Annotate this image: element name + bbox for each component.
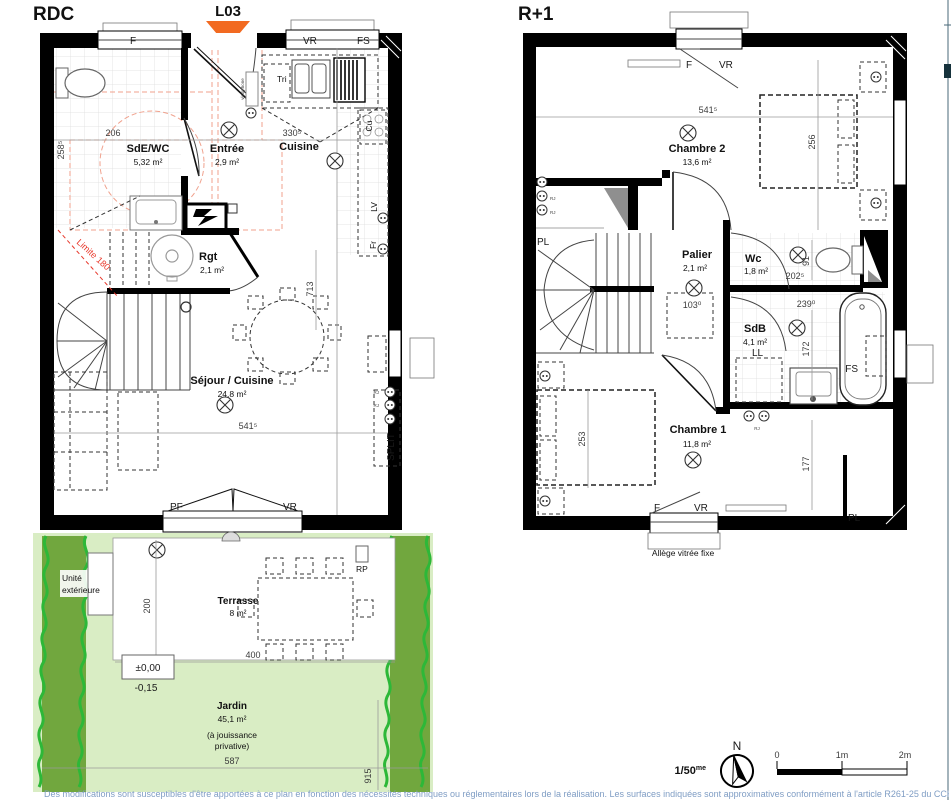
- dim-177: 177: [801, 456, 811, 471]
- closet-door: [604, 188, 628, 228]
- cuisine-name: Cuisine: [279, 141, 319, 153]
- r1-window-sdb: [894, 330, 906, 378]
- closet-wall: [628, 186, 638, 230]
- ch2-bed: [760, 62, 886, 220]
- wc-partition: [723, 220, 730, 288]
- pl-left-label: PL: [537, 237, 550, 248]
- pillow: [838, 100, 854, 138]
- floor-plan-sheet: RDC L03 F VR FS: [0, 0, 951, 800]
- outlet-icon: [537, 191, 547, 201]
- viewport-edge: [944, 0, 951, 800]
- allege-box: [648, 533, 720, 549]
- rdc-partition: [181, 48, 188, 112]
- rdc-pf-label: PF: [170, 502, 183, 513]
- ch1-area: 11,8 m²: [683, 439, 711, 449]
- plan-canvas: RDC L03 F VR FS: [0, 0, 951, 800]
- rgt-area: 2,1 m²: [200, 265, 224, 275]
- wc-name: Wc: [745, 253, 762, 265]
- scale-2m: 2m: [899, 750, 912, 760]
- window-sill: [410, 338, 434, 378]
- outlet-icon: [385, 414, 395, 424]
- toilet-bowl: [65, 69, 105, 97]
- dim-206: 206: [105, 128, 120, 138]
- scale-bar-black: [777, 769, 842, 775]
- switch-box: [228, 204, 237, 213]
- level-minus15: -0,15: [135, 683, 158, 694]
- r1-vr-label: VR: [719, 60, 733, 71]
- dim-915: 915: [363, 768, 373, 783]
- exterior-unit: [88, 553, 113, 615]
- jardin-note2: privative): [215, 741, 250, 751]
- palier-area: 2,1 m²: [683, 263, 707, 273]
- sde-name: SdE/WC: [127, 143, 170, 155]
- terrasse-area: 8 m²: [230, 608, 247, 618]
- scale-0: 0: [774, 750, 779, 760]
- coffee-table: [118, 392, 158, 470]
- bathtub: [840, 293, 886, 405]
- outlet-icon: [246, 108, 256, 118]
- legend: 1/50me N 0 1m 2m: [674, 739, 911, 790]
- dim-330: 330⁵: [283, 128, 302, 138]
- rdc-window-fs-label: FS: [357, 36, 370, 47]
- washbasin: [130, 196, 182, 230]
- shelf: [726, 505, 786, 511]
- sdb-faucet: [810, 396, 816, 402]
- outlet-icon: [744, 411, 754, 421]
- rdc-entry-opening: [191, 33, 257, 48]
- scale-1m: 1m: [836, 750, 849, 760]
- dim-400: 400: [245, 650, 260, 660]
- r1-window-bottom: [650, 513, 718, 533]
- unite-ext-label2: extérieure: [62, 585, 100, 595]
- terrasse-name: Terrasse: [218, 596, 259, 607]
- dim-541: 541⁵: [239, 421, 258, 431]
- sdb-name: SdB: [744, 323, 766, 335]
- rdc-title: RDC: [33, 4, 74, 25]
- dim-202: 202⁵: [786, 271, 805, 281]
- rj-label: RJ: [374, 390, 380, 395]
- chair: [313, 358, 328, 371]
- rj-label: RJ: [374, 403, 380, 408]
- lv-label: LV: [369, 202, 379, 212]
- dim-103: 103⁰: [683, 300, 702, 310]
- ch1-name: Chambre 1: [670, 424, 727, 436]
- rdc-toilet: [56, 68, 105, 98]
- outlet-icon: [378, 213, 388, 223]
- outlet-icon: [537, 205, 547, 215]
- ll-label: LL: [752, 348, 764, 359]
- wc-area: 1,8 m²: [744, 266, 768, 276]
- pl-right-label: PL: [848, 513, 861, 524]
- rgt-door-leaf: [230, 233, 258, 277]
- scale-label: 1/50me: [674, 765, 706, 777]
- r1-wall-left: [523, 33, 536, 530]
- dim-91: 91: [801, 256, 811, 266]
- dim-587: 587: [224, 756, 239, 766]
- outlet-icon: [378, 244, 388, 254]
- sdb-area: 4,1 m²: [743, 337, 767, 347]
- door-jamb: [716, 407, 730, 414]
- dim-713: 713: [305, 281, 315, 296]
- bath-door-leaf: [184, 118, 199, 176]
- chair: [248, 358, 263, 371]
- outlet-icon: [385, 400, 395, 410]
- outlet-icon: [871, 198, 881, 208]
- winder-tread: [560, 290, 594, 350]
- shelf: [628, 60, 680, 67]
- dim-256: 256: [807, 134, 817, 149]
- disclaimer-text: Des modifications sont susceptibles d'êt…: [44, 789, 949, 800]
- dim-258: 258⁵: [56, 140, 66, 159]
- edge-marker: [944, 64, 951, 78]
- lot-label: L03: [215, 3, 241, 20]
- rj-label: RJ: [550, 196, 556, 201]
- dim-239: 239⁰: [797, 299, 816, 309]
- garden-area: Unité extérieure RP Terrasse 8 m² 200 40…: [33, 532, 433, 792]
- winder-tread: [580, 290, 594, 353]
- level-0: ±0,00: [136, 663, 161, 674]
- stair-mid-edge: [590, 286, 654, 292]
- tri-label: Tri: [277, 74, 287, 84]
- wc-toilet: [816, 246, 863, 274]
- fr-label: Fr: [368, 241, 378, 249]
- winder-tread: [538, 250, 594, 290]
- toilet-tank: [852, 246, 863, 274]
- ceiling-light-icon: [217, 397, 233, 413]
- bed: [537, 390, 655, 485]
- visiophone-unit: [246, 72, 258, 106]
- outlet-icon: [540, 496, 550, 506]
- rdc-wall-left: [40, 33, 54, 530]
- dim-172: 172: [801, 341, 811, 356]
- r1-staircase: [536, 233, 654, 353]
- rdc-window-f-label: F: [130, 36, 136, 47]
- rj-label: RJ: [754, 426, 760, 431]
- chair: [280, 288, 295, 300]
- cu-label: Cu: [364, 120, 374, 131]
- fs-label: FS: [845, 364, 858, 375]
- north-arrow-icon: [718, 752, 756, 790]
- wc-bottom-wall: [723, 285, 863, 292]
- outlet-icon: [537, 177, 547, 187]
- rdc-plan: RDC L03 F VR FS: [33, 3, 434, 532]
- window-sill: [291, 20, 374, 30]
- exterior-light-icon: [149, 542, 165, 558]
- rgt-name: Rgt: [199, 251, 218, 263]
- window-sill: [907, 345, 933, 383]
- toilet-bowl: [816, 248, 850, 272]
- r1-title: R+1: [518, 4, 554, 25]
- jardin-note1: (à jouissance: [207, 730, 257, 740]
- ch1-bed: [537, 362, 655, 514]
- r1-vr-bottom-label: VR: [694, 503, 708, 514]
- ceiling-light-icon: [221, 122, 237, 138]
- allege-bottom-label: Allège vitrée fixe: [652, 548, 715, 558]
- entree-area: 2,9 m²: [215, 157, 239, 167]
- winder-tread: [74, 341, 107, 388]
- r1-window-ch2: [894, 100, 906, 185]
- ch2-area: 13,6 m²: [683, 157, 712, 167]
- visiophone-label: visiophone: [240, 78, 245, 100]
- r1-f-bottom-label: F: [654, 503, 660, 514]
- rdc-window-right: [389, 330, 401, 377]
- sejour-name: Séjour / Cuisine: [190, 375, 273, 387]
- ceiling-light-icon: [685, 452, 701, 468]
- chair: [248, 296, 263, 309]
- split-label: SPLIT: [386, 433, 397, 461]
- sejour-area: 24,8 m²: [218, 389, 247, 399]
- pl-partition: [843, 455, 847, 516]
- ceiling-light-icon: [789, 320, 805, 336]
- rp-pipe: [356, 546, 368, 562]
- winder-tread: [58, 303, 107, 341]
- ch2-door-arc: [673, 172, 731, 230]
- allege-box: [670, 12, 748, 28]
- chair: [233, 325, 246, 340]
- jardin-area: 45,1 m²: [218, 714, 247, 724]
- north-label: N: [733, 739, 742, 753]
- dim-253: 253: [577, 431, 587, 446]
- outlet-icon: [759, 411, 769, 421]
- sdb-partition: [723, 292, 730, 407]
- ceiling-light-icon: [327, 153, 343, 169]
- unite-ext-label1: Unité: [62, 573, 82, 583]
- rj-label: RJ: [550, 210, 556, 215]
- sde-area: 5,32 m²: [134, 157, 163, 167]
- outlet-icon: [540, 371, 550, 381]
- scale-bar: 0 1m 2m: [774, 750, 911, 775]
- outlet-icon: [385, 387, 395, 397]
- jardin-name: Jardin: [217, 701, 247, 712]
- scale-bar-white: [842, 769, 907, 775]
- tv-unit: [368, 336, 386, 372]
- water-heater: [151, 235, 193, 277]
- ch2-name: Chambre 2: [669, 143, 726, 155]
- washbasin-faucet: [154, 220, 158, 224]
- limit-label: Limite 180: [75, 237, 113, 272]
- door-jamb: [662, 170, 670, 178]
- ceiling-light-icon: [686, 280, 702, 296]
- pillow: [838, 145, 854, 183]
- dim-541: 541⁵: [699, 105, 718, 115]
- rdc-french-door: [163, 511, 302, 532]
- ceiling-light-icon: [680, 125, 696, 141]
- rp-label: RP: [356, 564, 368, 574]
- outlet-icon: [871, 72, 881, 82]
- pillow: [540, 440, 556, 480]
- chair: [328, 325, 341, 340]
- stair-landing-edge: [107, 288, 230, 294]
- entree-name: Entrée: [210, 143, 244, 155]
- r1-f-label: F: [686, 60, 692, 71]
- chair: [313, 296, 328, 309]
- pillow: [540, 396, 556, 436]
- rdc-window-vr-label: VR: [303, 36, 317, 47]
- closet-wall: [536, 178, 662, 186]
- winder-tread: [540, 290, 594, 330]
- r1-plan: R+1 Allège vitrée fixe F VR F VR: [518, 4, 933, 558]
- palier-name: Palier: [682, 249, 713, 261]
- rdc-vr-bottom-label: VR: [283, 502, 297, 513]
- dim-200: 200: [142, 598, 152, 613]
